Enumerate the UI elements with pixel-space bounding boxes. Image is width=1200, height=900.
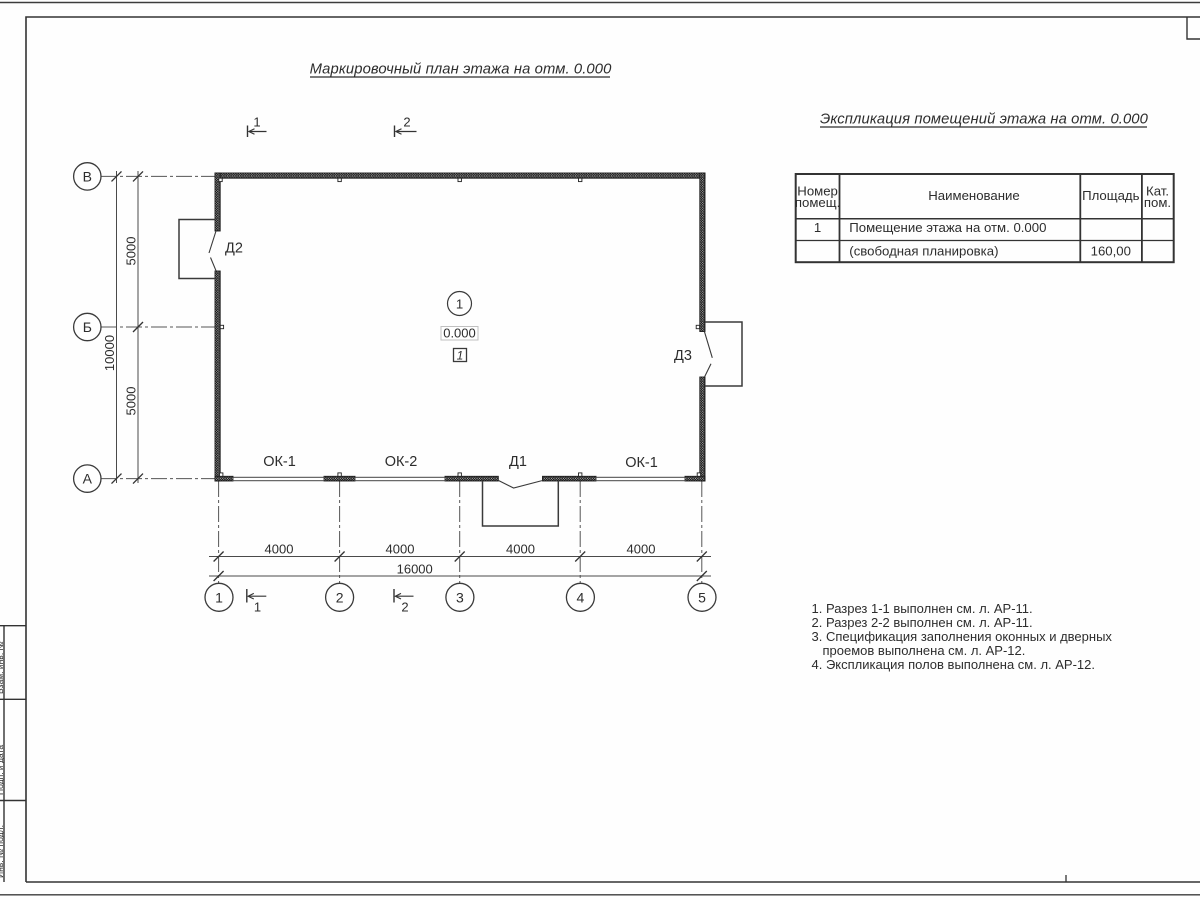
svg-text:16000: 16000 — [397, 561, 433, 576]
svg-text:пом.: пом. — [1144, 195, 1171, 210]
svg-text:2. Разрез 2-2 выполнен см. л.: 2. Разрез 2-2 выполнен см. л. АР-11. — [812, 615, 1033, 630]
svg-text:2: 2 — [336, 589, 344, 605]
svg-text:(свободная планировка): (свободная планировка) — [849, 243, 998, 258]
svg-text:4000: 4000 — [386, 542, 415, 557]
svg-text:1: 1 — [215, 589, 223, 605]
svg-text:4000: 4000 — [627, 542, 656, 557]
svg-text:4000: 4000 — [265, 542, 294, 557]
svg-text:проемов выполнена см. л. АР-12: проемов выполнена см. л. АР-12. — [823, 643, 1026, 658]
svg-text:Д2: Д2 — [225, 241, 243, 257]
svg-text:Д3: Д3 — [674, 348, 692, 364]
svg-text:В: В — [83, 168, 92, 184]
svg-text:2: 2 — [403, 115, 410, 130]
svg-text:Наименование: Наименование — [928, 188, 1019, 203]
svg-text:1: 1 — [457, 348, 464, 362]
svg-text:3. Спецификация заполнения око: 3. Спецификация заполнения оконных и две… — [812, 629, 1113, 644]
svg-text:Взам. инв. №: Взам. инв. № — [0, 641, 5, 694]
svg-text:А: А — [83, 471, 93, 487]
svg-text:4000: 4000 — [506, 542, 535, 557]
svg-text:ОК-1: ОК-1 — [625, 455, 658, 471]
svg-text:ОК-1: ОК-1 — [263, 454, 296, 470]
svg-text:Экспликация помещений этажа на: Экспликация помещений этажа на отм. 0.00… — [820, 112, 1149, 128]
svg-text:ОК-2: ОК-2 — [385, 454, 418, 470]
svg-text:Площадь: Площадь — [1082, 188, 1140, 203]
svg-text:помещ.: помещ. — [795, 195, 840, 210]
svg-text:4. Экспликация полов выполнена: 4. Экспликация полов выполнена см. л. АР… — [812, 657, 1096, 672]
svg-text:10000: 10000 — [102, 335, 117, 371]
svg-text:Помещение этажа на отм. 0.000: Помещение этажа на отм. 0.000 — [849, 220, 1046, 235]
svg-text:Д1: Д1 — [509, 454, 527, 470]
svg-text:1: 1 — [254, 600, 261, 615]
svg-text:5000: 5000 — [124, 237, 139, 266]
svg-text:Маркировочный план этажа на от: Маркировочный план этажа на отм. 0.000 — [310, 62, 613, 78]
svg-text:0.000: 0.000 — [443, 326, 476, 341]
svg-text:5: 5 — [698, 589, 706, 605]
svg-text:1: 1 — [456, 297, 463, 312]
svg-text:1: 1 — [253, 115, 260, 130]
svg-text:2: 2 — [401, 600, 408, 615]
svg-text:3: 3 — [456, 589, 464, 605]
svg-text:4: 4 — [577, 589, 585, 605]
svg-text:Б: Б — [83, 319, 92, 335]
svg-text:Инв. № подл.: Инв. № подл. — [0, 825, 5, 878]
svg-text:1. Разрез 1-1 выполнен см. л.: 1. Разрез 1-1 выполнен см. л. АР-11. — [812, 601, 1033, 616]
svg-text:160,00: 160,00 — [1091, 243, 1131, 258]
svg-text:1: 1 — [814, 220, 821, 235]
svg-text:5000: 5000 — [124, 387, 139, 416]
svg-text:Подп. и дата: Подп. и дата — [0, 745, 5, 795]
